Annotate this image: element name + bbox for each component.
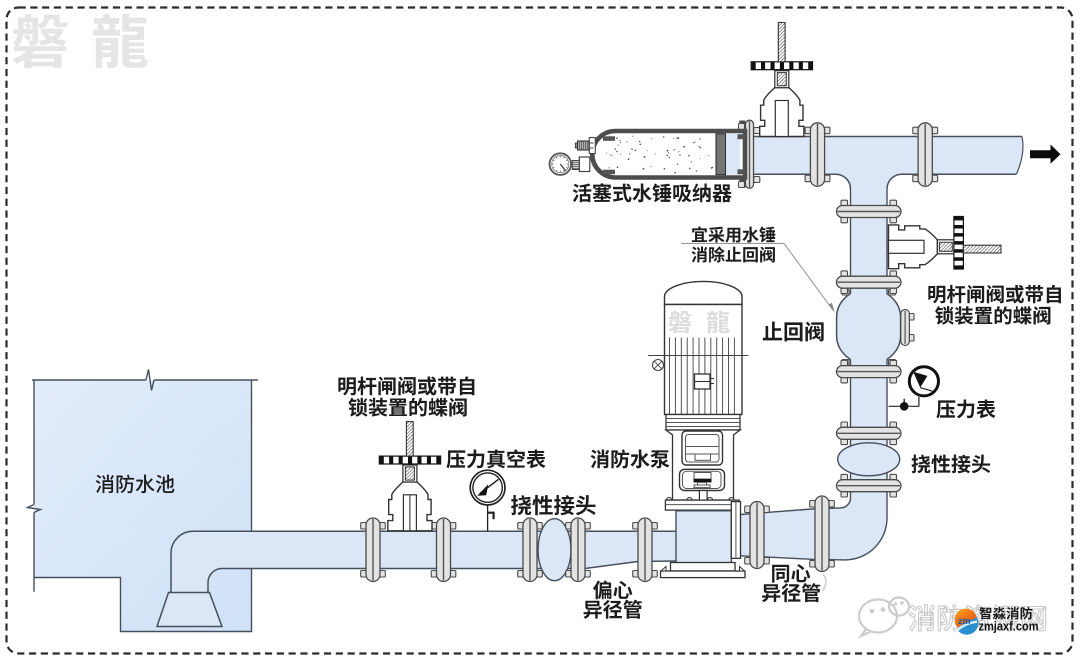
svg-text:zmjaxf.com: zmjaxf.com bbox=[979, 620, 1039, 634]
svg-text:zm: zm bbox=[958, 616, 971, 626]
